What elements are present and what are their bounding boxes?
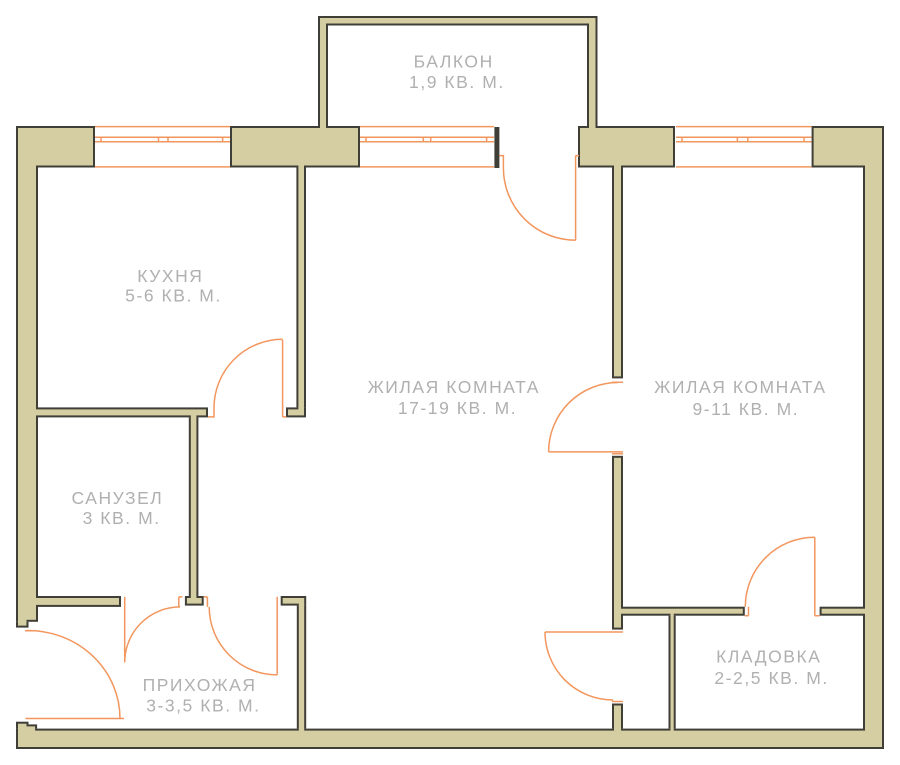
svg-text:ЖИЛАЯ КОМНАТА: ЖИЛАЯ КОМНАТА (368, 377, 540, 397)
svg-text:ПРИХОЖАЯ: ПРИХОЖАЯ (143, 675, 257, 695)
svg-text:3 КВ. М.: 3 КВ. М. (83, 508, 161, 528)
svg-text:ЖИЛАЯ КОМНАТА: ЖИЛАЯ КОМНАТА (654, 377, 826, 397)
svg-text:КУХНЯ: КУХНЯ (137, 266, 203, 286)
svg-text:2-2,5 КВ. М.: 2-2,5 КВ. М. (714, 668, 828, 688)
svg-text:5-6 КВ. М.: 5-6 КВ. М. (125, 286, 222, 306)
svg-text:САНУЗЕЛ: САНУЗЕЛ (71, 488, 163, 508)
svg-text:1,9 КВ. М.: 1,9 КВ. М. (409, 72, 505, 92)
svg-text:17-19 КВ. М.: 17-19 КВ. М. (398, 398, 517, 418)
svg-text:БАЛКОН: БАЛКОН (414, 52, 494, 72)
svg-text:3-3,5 КВ. М.: 3-3,5 КВ. М. (146, 696, 260, 716)
svg-text:9-11 КВ. М.: 9-11 КВ. М. (692, 399, 799, 419)
svg-text:КЛАДОВКА: КЛАДОВКА (716, 647, 821, 667)
